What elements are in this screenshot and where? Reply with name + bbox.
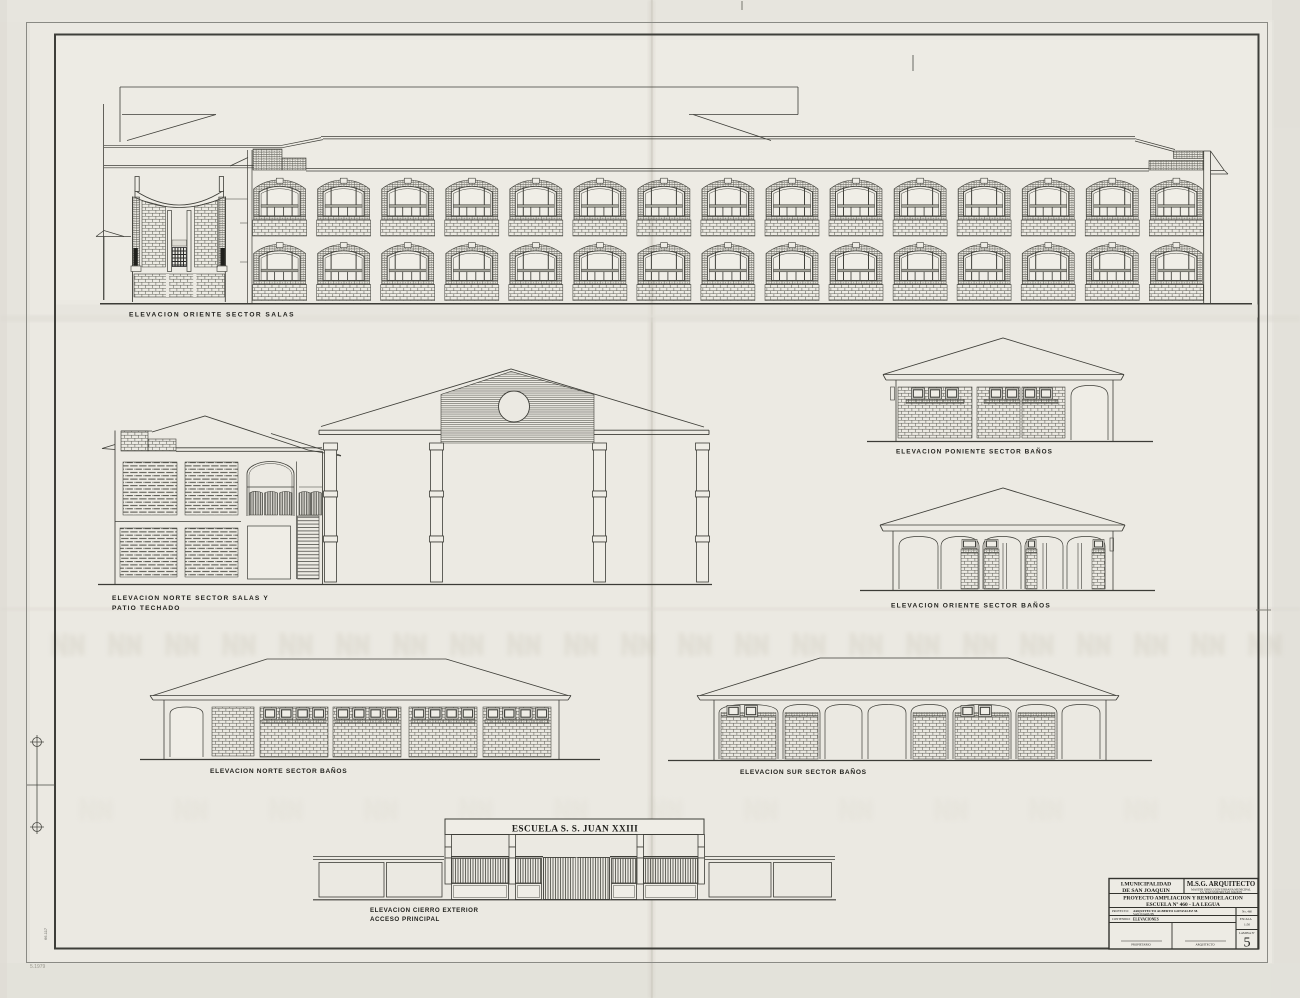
svg-text:ELEVACION NORTE SECTOR BAÑOS: ELEVACION NORTE SECTOR BAÑOS <box>210 766 347 775</box>
svg-text:PATIO TECHADO: PATIO TECHADO <box>112 605 181 612</box>
svg-text:SAN JOAQUIN: SAN JOAQUIN <box>1133 912 1155 916</box>
svg-text:5: 5 <box>1244 936 1251 951</box>
svg-text:1:50: 1:50 <box>1244 923 1250 927</box>
svg-text:ESCUELA S. S. JUAN XXIII: ESCUELA S. S. JUAN XXIII <box>512 825 638 835</box>
svg-text:ELEVACION SUR SECTOR BAÑOS: ELEVACION SUR SECTOR BAÑOS <box>740 767 867 776</box>
svg-text:I.MUNICIPALIDAD: I.MUNICIPALIDAD <box>1121 882 1171 888</box>
svg-text:ARQUITECTO: ARQUITECTO <box>1195 943 1215 947</box>
svg-text:PROYECTO AMPLIACION Y REMODELA: PROYECTO AMPLIACION Y REMODELACION <box>1123 896 1243 902</box>
svg-text:LAMINA Nº: LAMINA Nº <box>1239 931 1255 935</box>
svg-text:PROYECTO:: PROYECTO: <box>1112 909 1129 913</box>
svg-text:ELEVACION ORIENTE SECTOR SALAS: ELEVACION ORIENTE SECTOR SALAS <box>129 312 295 319</box>
svg-text:ELEVACION CIERRO EXTERIOR: ELEVACION CIERRO EXTERIOR <box>370 907 479 914</box>
svg-text:DE SAN JOAQUIN: DE SAN JOAQUIN <box>1122 888 1170 894</box>
svg-text:ELEVACION ORIENTE SECTOR BAÑOS: ELEVACION ORIENTE SECTOR BAÑOS <box>891 601 1051 610</box>
svg-text:ESCALA: ESCALA <box>1240 917 1253 921</box>
svg-text:ACCESO PRINCIPAL: ACCESO PRINCIPAL <box>370 916 440 923</box>
svg-text:ELEVACION PONIENTE SECTOR BAÑO: ELEVACION PONIENTE SECTOR BAÑOS <box>896 447 1053 456</box>
svg-text:5.1979: 5.1979 <box>30 964 46 970</box>
svg-text:PROPIETARIO: PROPIETARIO <box>1131 943 1151 947</box>
svg-text:CONTENIDO:: CONTENIDO: <box>1112 917 1130 921</box>
svg-text:66-117: 66-117 <box>43 927 48 940</box>
svg-text:ELEVACIONES: ELEVACIONES <box>1133 917 1159 921</box>
svg-text:No. 460: No. 460 <box>1242 910 1252 914</box>
svg-text:ELEVACION NORTE SECTOR SALAS Y: ELEVACION NORTE SECTOR SALAS Y <box>112 595 269 602</box>
svg-text:S.S. JUAN XXIII 5600 SAN JOAQU: S.S. JUAN XXIII 5600 SAN JOAQUIN <box>1200 891 1242 894</box>
svg-text:ESCUELA Nº 460 - LA LEGUA: ESCUELA Nº 460 - LA LEGUA <box>1146 902 1220 908</box>
